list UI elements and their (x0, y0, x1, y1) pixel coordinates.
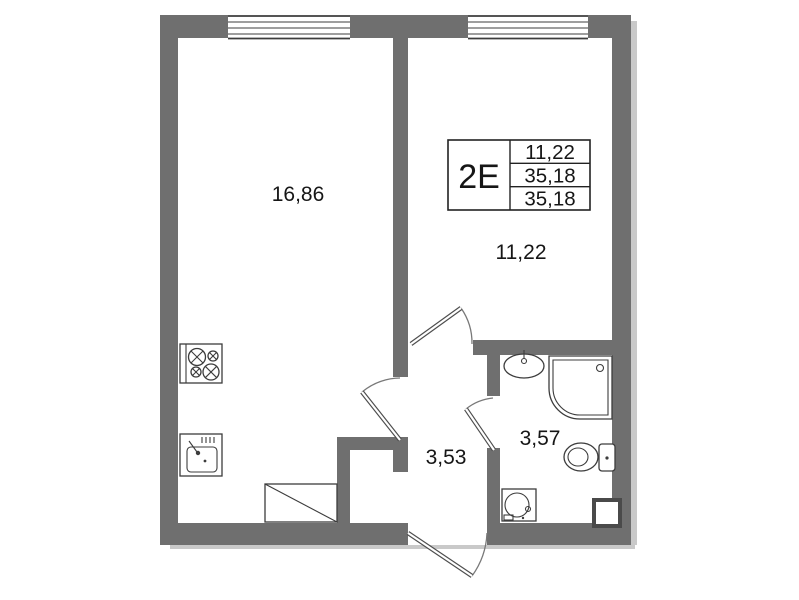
room-label-hallway: 3,53 (426, 446, 467, 469)
door-leaf (408, 533, 472, 576)
wall-shadow-right (631, 21, 637, 545)
door-swing-arc (472, 533, 487, 576)
legend-unit-type: 2Е (458, 158, 500, 196)
wall-outer-bottom-left (160, 523, 408, 545)
stove (180, 344, 222, 383)
door-swing-arc (362, 378, 400, 392)
door-swing-arc (461, 308, 472, 344)
door-bathroom (466, 398, 494, 450)
wall-living-bedroom (393, 15, 408, 377)
door-leaf (411, 308, 461, 344)
kitchen-sink (180, 434, 222, 476)
door-leaf (362, 392, 400, 440)
room-label-living: 16,86 (272, 183, 325, 206)
wall-shadow-bottom (170, 545, 635, 549)
wall-hall-niche-stub (393, 450, 408, 472)
washing-machine (502, 489, 536, 521)
vent-shaft (594, 500, 620, 526)
door-entrance (408, 533, 487, 576)
floor-plan-svg: 2Е 11,22 35,18 35,18 16,86 11,22 3,53 3,… (0, 0, 799, 600)
shower (549, 356, 612, 419)
window-bedroom (468, 15, 588, 39)
legend-row-2: 35,18 (524, 188, 575, 211)
wardrobe (265, 484, 337, 522)
legend-row-0: 11,22 (525, 141, 575, 164)
door-leaf (466, 409, 494, 450)
toilet-flush-dot (605, 456, 608, 459)
washing-machine-dot (522, 517, 524, 519)
wall-bathroom-left-lower (487, 448, 500, 525)
toilet-bowl (564, 443, 598, 471)
toilet (564, 443, 615, 471)
room-label-bathroom: 3,57 (520, 427, 561, 450)
wall-bathroom-left-upper (487, 347, 500, 396)
washing-machine-body (502, 489, 536, 521)
sink-body (180, 434, 222, 476)
door-bedroom (411, 308, 472, 344)
floor-plan-canvas: 2Е 11,22 35,18 35,18 16,86 11,22 3,53 3,… (0, 0, 799, 600)
legend-table: 2Е 11,22 35,18 35,18 (448, 140, 590, 211)
room-label-bedroom: 11,22 (496, 241, 547, 264)
door-swing-arc (466, 398, 493, 409)
window-living (228, 15, 350, 39)
wall-outer-left (160, 15, 178, 545)
legend-row-1: 35,18 (524, 165, 575, 188)
door-living (362, 378, 400, 440)
sink-faucet-head (196, 451, 200, 455)
wall-hall-niche-left (337, 437, 350, 525)
sink-drain-dot (204, 460, 207, 463)
